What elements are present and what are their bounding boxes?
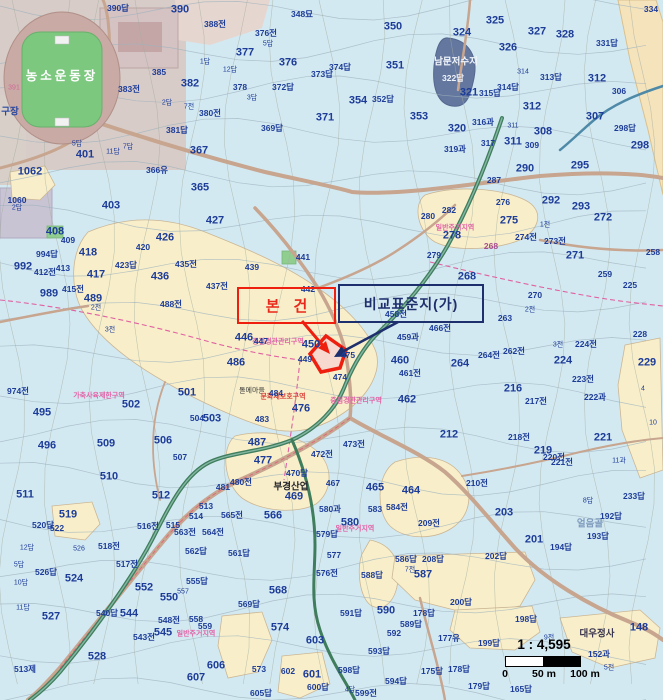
parcel-label: 476 (292, 404, 310, 415)
parcel-label: 594답 (385, 677, 407, 686)
parcel-label: 334 (644, 5, 658, 14)
scale-ratio-text: 1 : 4,595 (505, 637, 583, 652)
parcel-label: 316과 (472, 118, 494, 127)
parcel-label: 198답 (515, 615, 537, 624)
parcel-label: 376 (279, 58, 297, 69)
parcel-label: 559 (198, 622, 212, 631)
scale-tick-100: 100 m (570, 668, 600, 680)
parcel-label: 178답 (448, 665, 470, 674)
parcel-label: 481 (216, 483, 230, 492)
parcel-label: 217전 (525, 397, 547, 406)
parcel-label: 563전 (174, 528, 196, 537)
parcel-label: 275 (500, 216, 518, 227)
parcel-label: 371 (316, 113, 334, 124)
parcel-label: 175답 (421, 667, 443, 676)
parcel-label: 565전 (221, 511, 243, 520)
parcel-label: 461전 (399, 369, 421, 378)
parcel-label: 367 (190, 146, 208, 157)
parcel-label: 519 (59, 510, 77, 521)
parcel-label: 8답 (583, 498, 593, 505)
parcel-label: 366유 (146, 166, 168, 175)
parcel-label: 989 (40, 289, 58, 300)
parcel-label: 552 (135, 583, 153, 594)
parcel-label: 510 (100, 472, 118, 483)
parcel-label: 225 (623, 281, 637, 290)
parcel-label: 409 (61, 236, 75, 245)
parcel-label: 378 (233, 83, 247, 92)
parcel-label: 314 (517, 69, 529, 76)
parcel-label: 486 (227, 358, 245, 369)
parcel-label: 1답 (200, 59, 210, 66)
parcel-label: 381답 (166, 126, 188, 135)
parcel-label: 449 (298, 355, 312, 364)
parcel-label: 426 (156, 233, 174, 244)
parcel-label: 373답 (311, 70, 333, 79)
parcel-label: 564전 (202, 528, 224, 537)
parcel-label: 287 (487, 176, 501, 185)
parcel-label: 603 (306, 636, 324, 647)
parcel-label: 3전 (105, 327, 115, 334)
parcel-label: 293 (572, 202, 590, 213)
parcel-label: 282 (442, 206, 456, 215)
parcel-label: 439 (245, 263, 259, 272)
parcel-label: 222과 (584, 393, 606, 402)
parcel-label: 420 (136, 243, 150, 252)
parcel-label: 202답 (485, 552, 507, 561)
parcel-label: 550 (160, 593, 178, 604)
parcel-label: 5답 (72, 141, 82, 148)
parcel-label: 10 (649, 420, 657, 427)
parcel-label: 325 (486, 16, 504, 27)
parcel-label: 526 (73, 546, 85, 553)
parcel-label: 512 (152, 491, 170, 502)
parcel-label: 401 (76, 150, 94, 161)
parcel-label: 10답 (14, 580, 28, 587)
parcel-label: 11답 (16, 605, 30, 612)
parcel-label: 311 (507, 123, 518, 130)
parcel-label: 268 (484, 242, 498, 251)
parcel-label: 314답 (497, 83, 519, 92)
parcel-label: 5답 (14, 562, 24, 569)
parcel-label: 390답 (107, 4, 129, 13)
parcel-label: 577 (327, 551, 341, 560)
parcel-label: 514 (189, 512, 203, 521)
parcel-label: 351 (386, 61, 404, 72)
parcel-label: 7전 (184, 104, 194, 111)
parcel-label: 467 (326, 479, 340, 488)
parcel-label: 290 (516, 164, 534, 175)
parcel-label: 503 (203, 414, 221, 425)
parcel-label: 522 (50, 524, 64, 533)
parcel-label: 587 (414, 570, 432, 581)
parcel-label: 589답 (400, 620, 422, 629)
parcel-label: 473전 (343, 440, 365, 449)
parcel-label: 203 (495, 508, 513, 519)
parcel-label: 417 (87, 270, 105, 281)
parcel-label: 380전 (199, 109, 221, 118)
parcel-label: 489 (84, 294, 102, 305)
parcel-label: 437전 (206, 282, 228, 291)
parcel-label: 212 (440, 430, 458, 441)
parcel-label: 506 (154, 436, 172, 447)
parcel-label: 459과 (397, 333, 419, 342)
parcel-label: 413 (56, 264, 70, 273)
parcel-label: 11답 (106, 149, 120, 156)
parcel-label: 179답 (468, 682, 490, 691)
cadastral-map: 농소운동장남문저수지부경산업대우정사얼음골구장돌메마을일반주거지역일반주거지역일… (0, 0, 663, 700)
parcel-label: 308 (534, 127, 552, 138)
parcel-label: 199답 (478, 639, 500, 648)
parcel-label: 507 (173, 453, 187, 462)
parcel-label: 501 (178, 388, 196, 399)
parcel-label: 544 (120, 609, 138, 620)
parcel-label: 441 (296, 253, 310, 262)
parcel-label: 580과 (319, 505, 341, 514)
parcel-label: 210전 (466, 479, 488, 488)
parcel-label: 271 (566, 251, 584, 262)
parcel-label: 415전 (62, 285, 84, 294)
parcel-label: 2전 (525, 307, 535, 314)
parcel-label: 470답 (286, 469, 308, 478)
parcel-label: 568 (269, 586, 287, 597)
parcel-label: 403 (102, 201, 120, 212)
parcel-label: 326 (499, 43, 517, 54)
zone-label: 가축사육제한구역 (73, 393, 125, 400)
parcel-label: 354 (349, 96, 367, 107)
parcel-label: 487 (248, 438, 266, 449)
parcel-label: 324 (453, 28, 471, 39)
parcel-label: 377 (236, 48, 254, 59)
parcel-label: 480전 (230, 478, 252, 487)
parcel-label: 580 (341, 518, 359, 529)
parcel-label: 258 (646, 248, 660, 257)
parcel-label: 466전 (429, 324, 451, 333)
parcel-label: 365 (191, 183, 209, 194)
parcel-label: 548전 (158, 616, 180, 625)
parcel-label: 262전 (503, 347, 525, 356)
parcel-label: 574 (271, 623, 289, 634)
parcel-label: 576전 (316, 569, 338, 578)
parcel-label: 7답 (123, 144, 133, 151)
parcel-label: 4답 (345, 687, 355, 694)
temple-label: 대우정사 (580, 629, 615, 639)
parcel-label: 418 (79, 248, 97, 259)
parcel-label: 311 (504, 137, 522, 148)
parcel-label: 605답 (250, 689, 272, 698)
parcel-label: 555답 (186, 577, 208, 586)
parcel-label: 545 (154, 628, 172, 639)
parcel-label: 465 (366, 483, 384, 494)
parcel-label: 607 (187, 673, 205, 684)
parcel-label: 561답 (228, 549, 250, 558)
parcel-label: 509 (97, 439, 115, 450)
parcel-label: 307 (586, 112, 604, 123)
parcel-label: 224 (554, 356, 572, 367)
parcel-label: 148 (630, 623, 648, 634)
parcel-label: 583 (368, 505, 382, 514)
zone-label: 중점경관관리구역 (330, 398, 382, 405)
parcel-label: 233답 (623, 492, 645, 501)
parcel-label: 601 (303, 670, 321, 681)
parcel-label: 224전 (575, 340, 597, 349)
parcel-label: 208답 (422, 555, 444, 564)
parcel-label: 3답 (247, 95, 257, 102)
stadium-label: 농소운동장 (26, 70, 99, 83)
zone-label: 일반주거지역 (177, 631, 216, 638)
parcel-label: 527 (42, 612, 60, 623)
parcel-label: 201 (525, 535, 543, 546)
parcel-label: 573 (252, 665, 266, 674)
parcel-label: 382 (181, 79, 199, 90)
parcel-label: 518전 (98, 542, 120, 551)
parcel-label: 328 (556, 30, 574, 41)
parcel-label: 264전 (478, 351, 500, 360)
parcel-label: 992 (14, 262, 32, 273)
parcel-label: 259 (598, 270, 612, 279)
subject-annotation-label: 본건 (252, 295, 322, 316)
parcel-label: 298답 (614, 124, 636, 133)
parcel-label: 352답 (372, 95, 394, 104)
parcel-label: 2답 (162, 100, 172, 107)
parcel-label: 276 (496, 198, 510, 207)
parcel-label: 295 (571, 161, 589, 172)
comparison-annotation-box: 비교표준지(가) (338, 284, 484, 323)
parcel-label: 590 (377, 606, 395, 617)
scale-tick-50: 50 m (532, 668, 556, 680)
parcel-label: 472전 (311, 450, 333, 459)
parcel-label: 606 (207, 661, 225, 672)
parcel-label: 598답 (338, 666, 360, 675)
parcel-label: 322답 (442, 74, 464, 83)
parcel-label: 350 (384, 22, 402, 33)
parcel-label: 592 (387, 629, 401, 638)
parcel-label: 513 (199, 502, 213, 511)
parcel-label: 221 (594, 433, 612, 444)
parcel-label: 474 (333, 373, 347, 382)
parcel-label: 464 (402, 486, 420, 497)
parcel-label: 540답 (96, 609, 118, 618)
parcel-label: 312 (588, 74, 606, 85)
parcel-label: 279 (427, 251, 441, 260)
parcel-label: 12답 (223, 67, 237, 74)
parcel-label: 412전 (34, 268, 56, 277)
parcel-label: 436 (151, 272, 169, 283)
parcel-label: 264 (451, 359, 469, 370)
parcel-label: 462 (398, 395, 416, 406)
map-artwork (0, 0, 663, 700)
parcel-label: 584전 (386, 503, 408, 512)
parcel-label: 524 (65, 574, 83, 585)
parcel-label: 209전 (418, 519, 440, 528)
parcel-label: 599전 (355, 689, 377, 698)
parcel-label: 593답 (368, 647, 390, 656)
parcel-label: 280 (421, 212, 435, 221)
comparison-annotation-label: 비교표준지(가) (364, 294, 459, 314)
reservoir-label: 남문저수지 (434, 57, 478, 67)
parcel-label: 228 (633, 330, 647, 339)
parcel-label: 273전 (544, 237, 566, 246)
parcel-label: 994답 (36, 250, 58, 259)
parcel-label: 298 (631, 141, 649, 152)
parcel-label: 2답 (12, 205, 22, 212)
parcel-label: 11과 (612, 458, 626, 465)
parcel-label: 496 (38, 441, 56, 452)
parcel-label: 3전 (553, 342, 563, 349)
parcel-label: 369답 (261, 124, 283, 133)
parcel-label: 5전 (604, 665, 614, 672)
parcel-label: 320 (448, 124, 466, 135)
parcel-label: 483 (255, 415, 269, 424)
parcel-label: 469 (285, 492, 303, 503)
parcel-label: 383전 (118, 85, 140, 94)
parcel-label: 495 (33, 408, 51, 419)
parcel-label: 543전 (133, 633, 155, 642)
parcel-label: 1전 (540, 222, 550, 229)
parcel-label: 216 (504, 384, 522, 395)
parcel-label: 391 (8, 85, 20, 92)
parcel-label: 331답 (596, 39, 618, 48)
parcel-label: 270 (528, 291, 542, 300)
parcel-label: 348묘 (291, 10, 313, 19)
parcel-label: 4 (641, 386, 645, 393)
scale-bar-black-half (543, 657, 580, 666)
parcel-label: 309 (525, 141, 539, 150)
parcel-label: 450 (302, 340, 320, 351)
parcel-label: 313답 (540, 73, 562, 82)
parcel-label: 218전 (508, 433, 530, 442)
parcel-label: 600답 (307, 683, 329, 692)
parcel-label: 513제 (14, 665, 36, 674)
parcel-label: 586답 (395, 555, 417, 564)
parcel-label: 566 (264, 511, 282, 522)
parcel-label: 427 (206, 216, 224, 227)
parcel-label: 278 (443, 231, 461, 242)
parcel-label: 435전 (175, 260, 197, 269)
parcel-label: 2전 (91, 305, 101, 312)
parcel-label: 557 (177, 589, 189, 596)
parcel-label: 388전 (204, 20, 226, 29)
parcel-label: 446 (235, 333, 253, 344)
parcel-label: 516전 (137, 522, 159, 531)
parcel-label: 268 (458, 272, 476, 283)
parcel-label: 1060 (8, 196, 27, 205)
parcel-label: 376전 (255, 29, 277, 38)
parcel-label: 272 (594, 213, 612, 224)
parcel-label: 390 (171, 5, 189, 16)
parcel-label: 165답 (510, 685, 532, 694)
parcel-label: 177유 (438, 634, 460, 643)
parcel-label: 588답 (361, 571, 383, 580)
parcel-label: 319과 (444, 145, 466, 154)
parcel-label: 263 (498, 314, 512, 323)
parcel-label: 178답 (413, 609, 435, 618)
scale-tick-0: 0 (502, 668, 508, 680)
parcel-label: 591답 (340, 609, 362, 618)
parcel-label: 221전 (551, 458, 573, 467)
parcel-label: 447 (254, 337, 268, 346)
parcel-label: 200답 (450, 598, 472, 607)
parcel-label: 7전 (405, 567, 415, 574)
parcel-label: 511 (16, 490, 34, 501)
parcel-label: 528 (88, 652, 106, 663)
parcel-label: 5답 (263, 41, 273, 48)
parcel-label: 475 (341, 351, 355, 360)
parcel-label: 229 (638, 358, 656, 369)
parcel-label: 488전 (160, 300, 182, 309)
parcel-label: 274전 (515, 233, 537, 242)
parcel-label: 321 (460, 88, 478, 99)
field-label: 구장 (1, 107, 18, 117)
parcel-label: 502 (122, 400, 140, 411)
parcel-label: 223전 (572, 375, 594, 384)
parcel-label: 312 (523, 102, 541, 113)
parcel-label: 353 (410, 112, 428, 123)
parcel-label: 385 (152, 68, 166, 77)
parcel-label: 372답 (272, 83, 294, 92)
parcel-label: 152과 (588, 650, 610, 659)
parcel-label: 974전 (7, 387, 29, 396)
parcel-label: 569답 (238, 600, 260, 609)
parcel-label: 193답 (587, 532, 609, 541)
parcel-label: 292 (542, 196, 560, 207)
parcel-label: 602 (281, 667, 295, 676)
parcel-label: 192답 (600, 512, 622, 521)
parcel-label: 327 (528, 27, 546, 38)
subject-annotation-box: 본건 (237, 287, 336, 324)
parcel-label: 477 (254, 456, 272, 467)
parcel-label: 1062 (18, 167, 42, 178)
parcel-label: 12답 (20, 545, 34, 552)
parcel-label: 306 (612, 87, 626, 96)
scale-bar (505, 656, 581, 667)
parcel-label: 526답 (35, 568, 57, 577)
parcel-label: 484 (269, 389, 283, 398)
parcel-label: 562답 (185, 547, 207, 556)
parcel-label: 423답 (115, 261, 137, 270)
parcel-label: 579답 (316, 530, 338, 539)
parcel-label: 460 (391, 356, 409, 367)
parcel-label: 517전 (116, 560, 138, 569)
parcel-label: 194답 (550, 543, 572, 552)
parcel-label: 317 (481, 139, 495, 148)
